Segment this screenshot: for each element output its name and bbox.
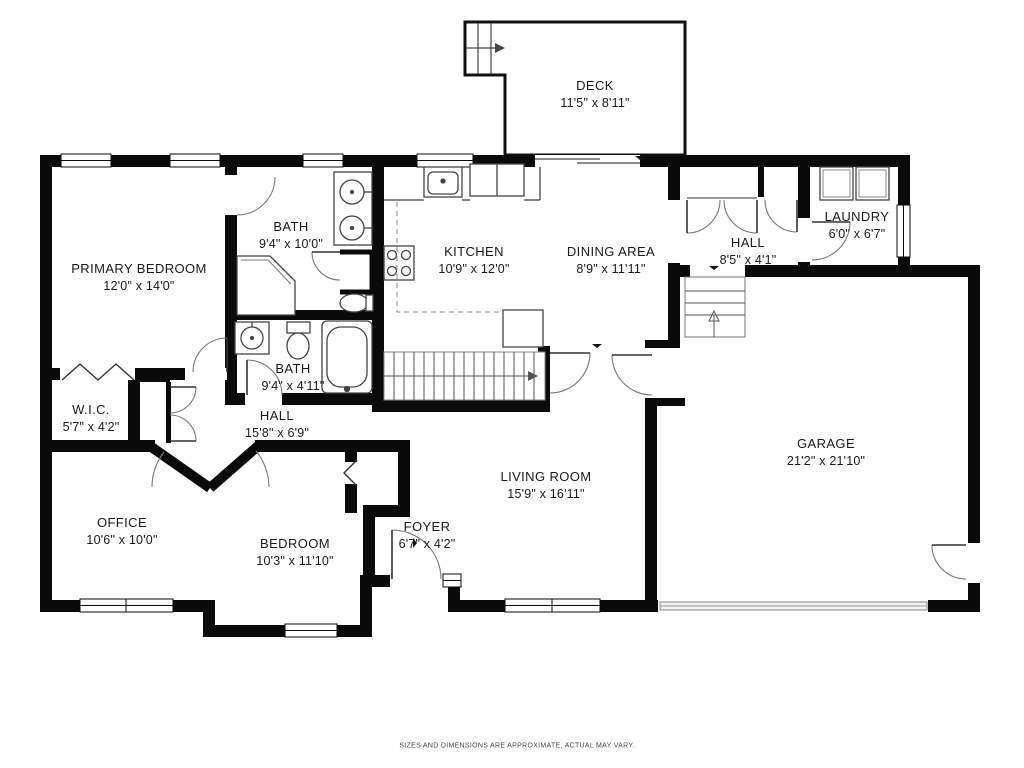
bedroom-closet-bifold-icon <box>344 460 357 486</box>
room-dims: 9'4" x 4'11" <box>261 379 324 393</box>
room-name: OFFICE <box>86 515 157 530</box>
room-dims: 10'9" x 12'0" <box>438 262 509 276</box>
room-dims: 9'4" x 10'0" <box>259 237 323 251</box>
room-name: DINING AREA <box>567 244 655 259</box>
room-label-wic: W.I.C. 5'7" x 4'2" <box>63 402 120 434</box>
room-name: HALL <box>245 408 309 423</box>
garage-door <box>660 602 927 610</box>
room-dims: 6'7" x 4'2" <box>399 537 456 551</box>
corner-shower <box>237 256 295 315</box>
room-label-bedroom: BEDROOM 10'3" x 11'10" <box>256 536 333 568</box>
room-name: GARAGE <box>787 436 865 451</box>
toilet <box>287 333 309 359</box>
disclaimer-text: SIZES AND DIMENSIONS ARE APPROXIMATE, AC… <box>399 743 634 750</box>
room-name: KITCHEN <box>438 244 509 259</box>
room-name: FOYER <box>399 519 456 534</box>
room-name: W.I.C. <box>63 402 120 417</box>
stove <box>384 246 414 280</box>
room-label-living-room: LIVING ROOM 15'9" x 16'11" <box>500 469 591 501</box>
room-label-deck: DECK 11'5" x 8'11" <box>560 78 629 110</box>
toilet <box>340 294 368 312</box>
laundry-fixtures <box>820 167 889 200</box>
floor-plan-svg <box>0 0 1024 768</box>
room-name: BATH <box>261 361 324 376</box>
room-label-dining-area: DINING AREA 8'9" x 11'11" <box>567 244 655 276</box>
room-name: PRIMARY BEDROOM <box>71 261 207 276</box>
room-label-bath-upper: BATH 9'4" x 10'0" <box>259 219 323 251</box>
room-name: BATH <box>259 219 323 234</box>
room-dims: 5'7" x 4'2" <box>63 420 120 434</box>
room-label-primary-bedroom: PRIMARY BEDROOM 12'0" x 14'0" <box>71 261 207 293</box>
room-label-kitchen: KITCHEN 10'9" x 12'0" <box>438 244 509 276</box>
floor-plan: DECK 11'5" x 8'11" PRIMARY BEDROOM 12'0"… <box>0 0 1024 768</box>
room-label-bath-lower: BATH 9'4" x 4'11" <box>261 361 324 393</box>
room-dims: 12'0" x 14'0" <box>71 279 207 293</box>
room-label-garage: GARAGE 21'2" x 21'10" <box>787 436 865 468</box>
room-name: LIVING ROOM <box>500 469 591 484</box>
room-dims: 6'0" x 6'7" <box>825 227 890 241</box>
toilet-tank <box>287 322 310 333</box>
room-label-office: OFFICE 10'6" x 10'0" <box>86 515 157 547</box>
wc-stall <box>340 252 372 292</box>
room-dims: 15'9" x 16'11" <box>500 487 591 501</box>
room-dims: 21'2" x 21'10" <box>787 454 865 468</box>
room-dims: 15'8" x 6'9" <box>245 426 309 440</box>
room-dims: 8'9" x 11'11" <box>567 262 655 276</box>
main-staircase <box>384 352 545 400</box>
room-name: LAUNDRY <box>825 209 890 224</box>
garage-staircase <box>685 277 745 337</box>
room-label-hall-main: HALL 15'8" x 6'9" <box>245 408 309 440</box>
kitchen-counter <box>503 310 543 347</box>
room-label-laundry: LAUNDRY 6'0" x 6'7" <box>825 209 890 241</box>
room-name: BEDROOM <box>256 536 333 551</box>
room-dims: 10'6" x 10'0" <box>86 533 157 547</box>
room-label-hall-upper: HALL 8'5" x 4'1" <box>720 235 777 267</box>
room-label-foyer: FOYER 6'7" x 4'2" <box>399 519 456 551</box>
deck-stairs-icon <box>466 23 505 74</box>
room-name: HALL <box>720 235 777 250</box>
room-dims: 10'3" x 11'10" <box>256 554 333 568</box>
room-name: DECK <box>560 78 629 93</box>
room-dims: 11'5" x 8'11" <box>560 96 629 110</box>
room-dims: 8'5" x 4'1" <box>720 253 777 267</box>
